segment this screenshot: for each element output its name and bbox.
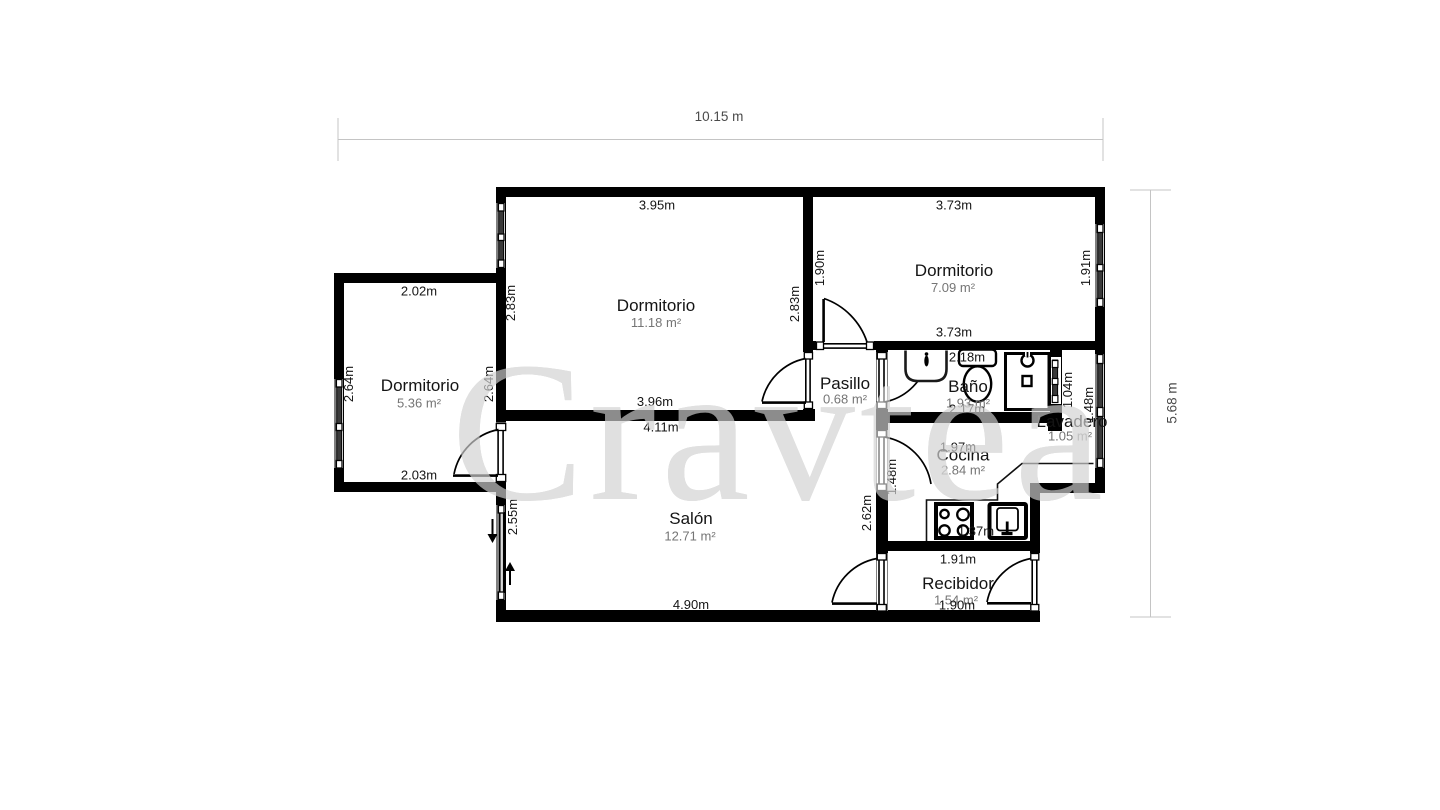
svg-text:2.02m: 2.02m xyxy=(401,284,437,299)
svg-text:10.15 m: 10.15 m xyxy=(695,109,744,124)
svg-text:7.09 m²: 7.09 m² xyxy=(931,280,976,295)
svg-text:2.64m: 2.64m xyxy=(341,366,356,402)
svg-text:Dormitorio: Dormitorio xyxy=(617,296,695,315)
svg-text:5.36 m²: 5.36 m² xyxy=(397,396,442,411)
svg-text:2.03m: 2.03m xyxy=(401,468,437,483)
svg-text:4.90m: 4.90m xyxy=(673,597,709,612)
svg-text:2.83m: 2.83m xyxy=(787,286,802,322)
svg-text:3.73m: 3.73m xyxy=(936,198,972,213)
svg-text:1.91m: 1.91m xyxy=(940,552,976,567)
svg-text:2.83m: 2.83m xyxy=(503,285,518,321)
svg-text:3.95m: 3.95m xyxy=(639,198,675,213)
svg-text:1.90m: 1.90m xyxy=(812,250,827,286)
svg-text:Cravtea: Cravtea xyxy=(451,322,1108,543)
svg-text:Recibidor: Recibidor xyxy=(922,574,994,593)
svg-text:Dormitorio: Dormitorio xyxy=(381,376,459,395)
svg-text:1.91m: 1.91m xyxy=(1078,250,1093,286)
svg-text:Dormitorio: Dormitorio xyxy=(915,261,993,280)
svg-text:5.68 m: 5.68 m xyxy=(1165,382,1180,423)
svg-text:1.90m: 1.90m xyxy=(939,598,975,613)
